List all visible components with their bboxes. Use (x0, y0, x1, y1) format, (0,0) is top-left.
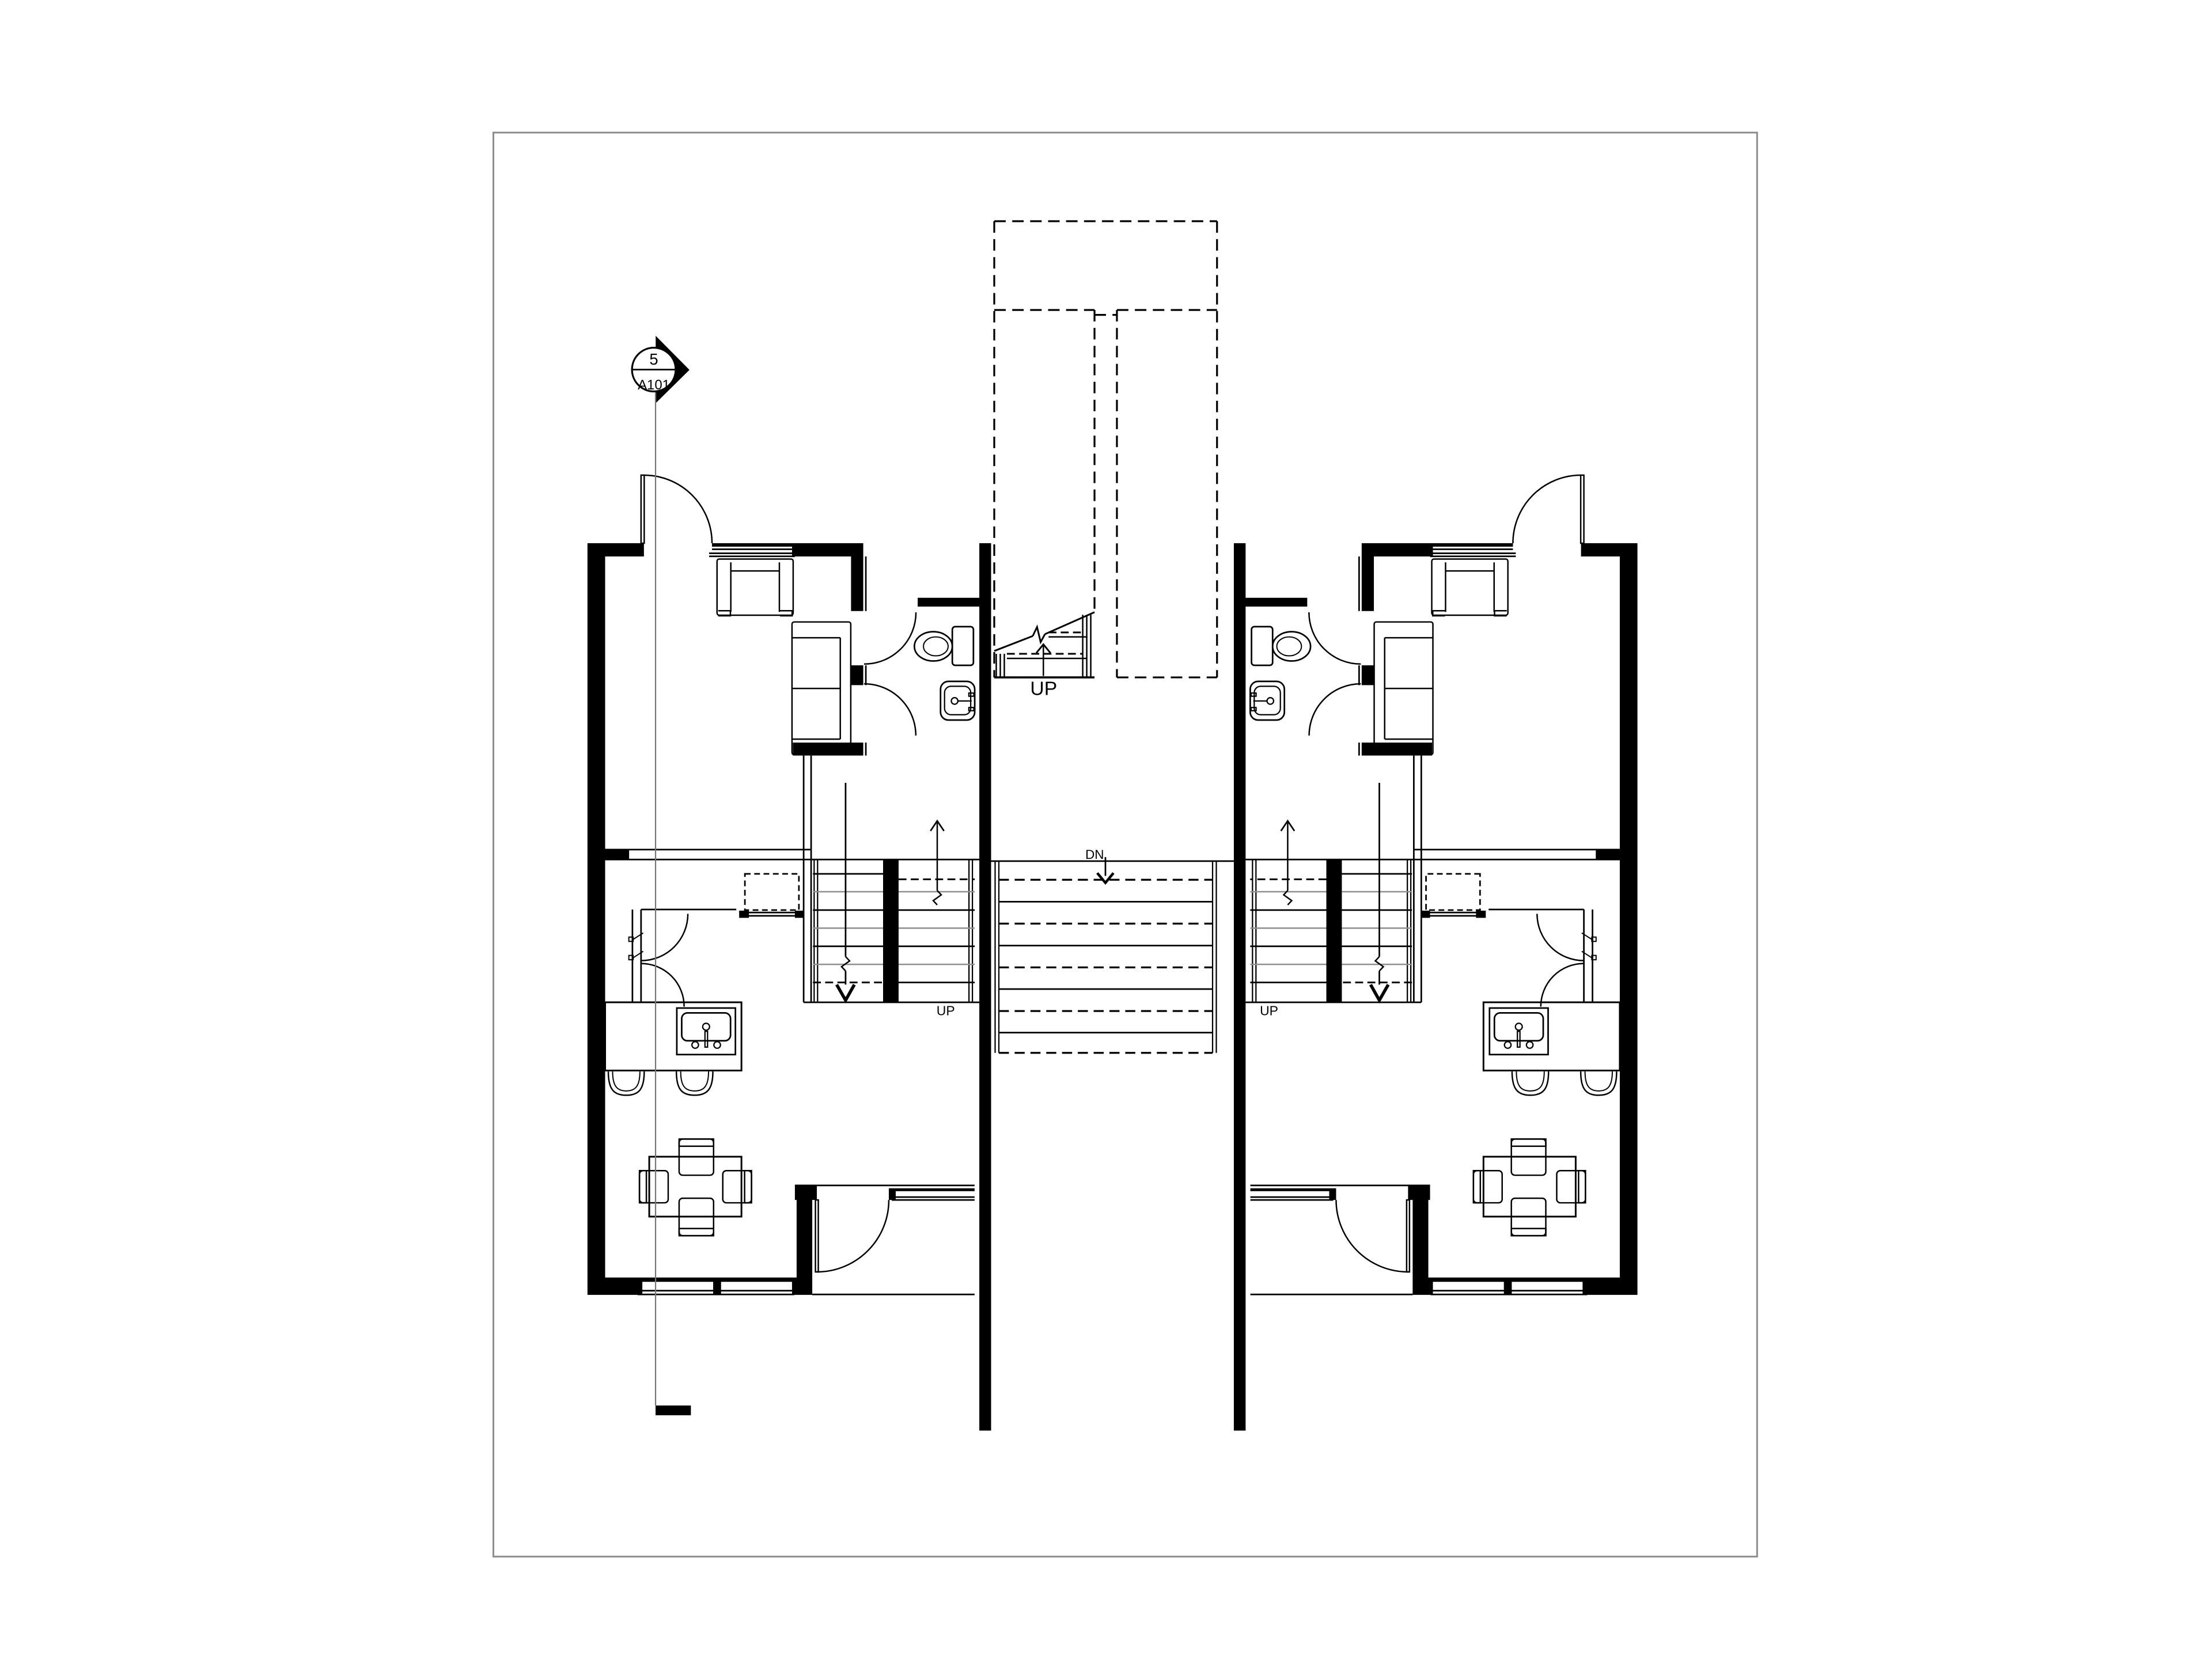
entry-stair: UP (994, 612, 1094, 700)
right-unit-stair-up-label: UP (1260, 1003, 1278, 1018)
door-swing-arc (817, 1200, 889, 1272)
dining-set (639, 1139, 751, 1236)
bedroom-entry-door (641, 475, 712, 543)
bathroom (864, 612, 975, 736)
entry-stair-up-label: UP (1030, 678, 1057, 699)
unit-left (588, 475, 991, 1431)
unit-entry-door (816, 1200, 889, 1272)
floor-plan: UP DN UP UP 5 A101 (0, 0, 2212, 1659)
door-swing-arc (644, 475, 712, 543)
section-detail-number: 5 (649, 350, 658, 368)
central-stair-rails (995, 861, 1217, 1053)
closet-dashed (745, 874, 799, 910)
bathroom-door-arc (864, 612, 916, 664)
door-leaf (641, 475, 644, 543)
bar-stools (608, 1071, 713, 1095)
left-unit-stair-up-label: UP (937, 1003, 955, 1018)
drawing-sheet: UP DN UP UP 5 A101 (0, 0, 2212, 1659)
upper-level-dashed-outline (994, 221, 1217, 677)
sheet-border (494, 132, 1758, 1556)
armchair (717, 559, 793, 615)
central-stair-down-label: DN (1085, 847, 1104, 862)
entry-up-arrow-icon (1036, 645, 1050, 676)
unit-walls (588, 543, 991, 1430)
section-line-terminator (656, 1406, 691, 1415)
door-leaf (816, 1200, 819, 1272)
kitchen-sink (677, 1008, 736, 1055)
kitchen (605, 874, 799, 1095)
central-stair-treads-dashed (999, 880, 1213, 1052)
central-stair: DN (991, 847, 1234, 1053)
section-sheet-number: A101 (638, 377, 670, 393)
bathroom-sink (941, 681, 975, 720)
toilet (914, 627, 973, 665)
hall-door-arc (864, 684, 916, 736)
loveseat-sofa (792, 622, 851, 755)
unit-right (1234, 475, 1638, 1431)
dining-table (649, 1157, 741, 1217)
kitchen-double-door (629, 914, 688, 1006)
